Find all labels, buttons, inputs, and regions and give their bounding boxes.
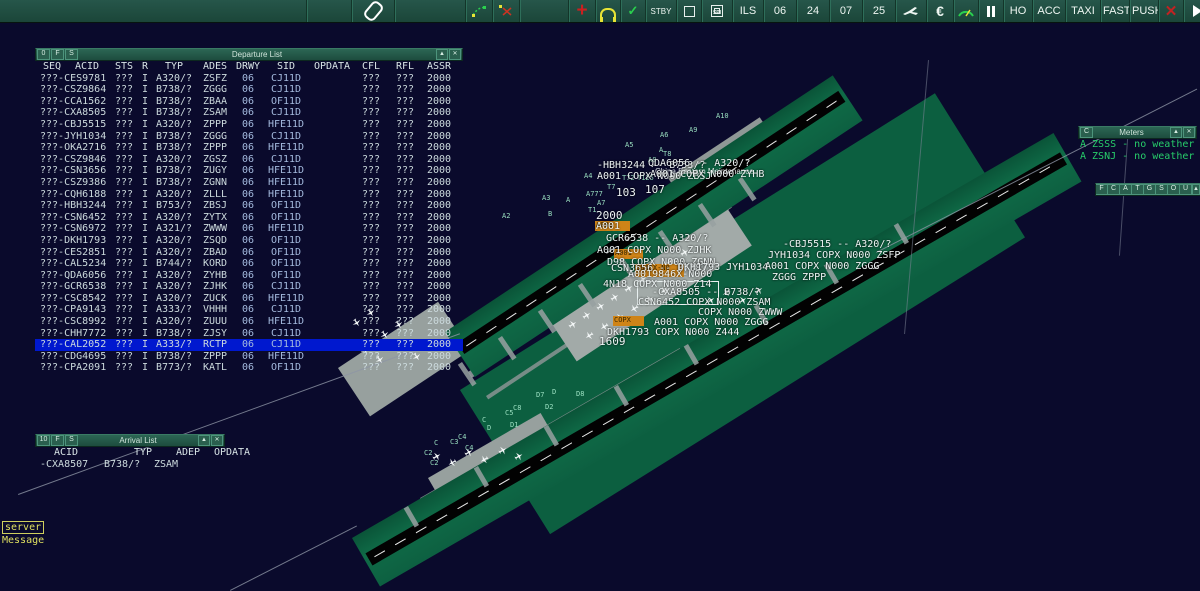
window-button[interactable]: F [51, 435, 64, 446]
departure-row[interactable]: ???-CAL5234???IB744/?KORD06OF11D??????20… [35, 258, 463, 270]
flight-datablock[interactable]: A001 COPX N000 ZYHB [650, 169, 764, 180]
close-button[interactable]: ✕ [211, 435, 223, 446]
departure-row[interactable]: ???-CQH6188???IA320/?ZLLL06HFE11D??????2… [35, 189, 463, 201]
cell: ??? [110, 107, 138, 119]
arrival-list-titlebar[interactable]: 10 F S Arrival List ▲ ✕ [35, 434, 225, 447]
cell: ZUGY [196, 165, 234, 177]
cell: ??? [110, 235, 138, 247]
pause-button[interactable] [978, 0, 1003, 22]
taxiway-label: D [487, 424, 491, 432]
column-header: OPDATA [208, 447, 256, 459]
cell: ???-CBJ5515 [40, 119, 110, 131]
departure-row[interactable]: ???-CSN3656???IB738/?ZUGY06HFE11D??????2… [35, 165, 463, 177]
cell: 06 [234, 235, 262, 247]
cell: ZJHK [196, 281, 234, 293]
cell: B738/? [104, 459, 154, 471]
cell: 2000 [422, 247, 456, 259]
cell: ZUUU [196, 316, 234, 328]
column-header: ADEP [168, 447, 208, 459]
cell: HFE11D [262, 165, 310, 177]
cell: VHHH [196, 304, 234, 316]
cell: ZPPP [196, 142, 234, 154]
cell: ???-JYH1034 [40, 131, 110, 143]
cell: ??? [110, 142, 138, 154]
cell: B738/? [152, 351, 196, 363]
cell: KORD [196, 258, 234, 270]
cell: B738/? [152, 328, 196, 340]
stand-number-label: 1609 [599, 335, 626, 348]
message-label[interactable]: Message [2, 535, 44, 546]
cell: ??? [354, 293, 388, 305]
taxiway-label: A [566, 196, 570, 204]
runway-07-button[interactable]: 07 [829, 0, 862, 22]
filter-button-c[interactable]: C [1108, 184, 1120, 195]
flight-datablock[interactable]: GCR6538 -- A320/? [606, 233, 708, 244]
minimize-button[interactable]: ▲ [1170, 127, 1182, 138]
cell: ZSQD [196, 235, 234, 247]
departure-row[interactable]: ???-CPA2091???IB773/?KATL06OF11D??????20… [35, 362, 463, 374]
cell: I [138, 131, 152, 143]
aircraft-view-button[interactable] [895, 0, 926, 22]
cell: ???-GCR6538 [40, 281, 110, 293]
cell: OF11D [262, 247, 310, 259]
acc-button[interactable]: ACC [1032, 0, 1065, 22]
flight-datablock[interactable]: -CBJ5515 -- A320/? [783, 239, 891, 250]
window-title: Departure List [78, 50, 436, 59]
flight-datablock[interactable]: A001 [596, 221, 620, 232]
cell: I [138, 362, 152, 374]
cell: ZGNN [196, 177, 234, 189]
cell: ??? [388, 270, 422, 282]
cell: ??? [354, 131, 388, 143]
cell: ??? [354, 142, 388, 154]
stand-number-label: 2000 [596, 209, 623, 222]
arrival-list-window: 10 F S Arrival List ▲ ✕ ACIDTYPADEPOPDAT… [35, 434, 225, 470]
cell: HFE11D [262, 316, 310, 328]
stby-button[interactable]: STBY [645, 0, 676, 22]
departure-list-header: SEQACIDSTSRTYPADESDRWYSIDOPDATACFLRFLASS… [35, 61, 463, 73]
cell: HFE11D [262, 189, 310, 201]
filter-button-s[interactable]: S [1156, 184, 1168, 195]
taxiway-label: C [482, 416, 486, 424]
runway-25-button[interactable]: 25 [862, 0, 895, 22]
cell: I [138, 235, 152, 247]
cell: OF11D [262, 235, 310, 247]
cell: HFE11D [262, 177, 310, 189]
taxiway-label: A7 [597, 199, 605, 207]
departure-row[interactable]: ???-CCA1562???IB738/?ZBAA06OF11D??????20… [35, 96, 463, 108]
cell: OF11D [262, 200, 310, 212]
cell: ??? [110, 177, 138, 189]
cell: ???-CPA9143 [40, 304, 110, 316]
cell: 06 [234, 304, 262, 316]
cell: 06 [234, 223, 262, 235]
cell: ??? [388, 154, 422, 166]
spi-button[interactable]: SPI [701, 0, 732, 22]
cell: ??? [388, 362, 422, 374]
column-header: TYP [118, 447, 168, 459]
cell: I [138, 189, 152, 201]
cell: ZGSZ [196, 154, 234, 166]
cell: ??? [354, 281, 388, 293]
filter-button-o[interactable]: O [1168, 184, 1180, 195]
taxiway-label: D7 [536, 391, 544, 399]
cell: ZYTX [196, 212, 234, 224]
flight-datablock[interactable]: DKH1793 JYH1034 [678, 262, 768, 273]
cell: ???-CSZ9864 [40, 84, 110, 96]
cell: 06 [234, 165, 262, 177]
taxiway-label: A4 [584, 172, 592, 180]
cell: 06 [234, 328, 262, 340]
cell: ZPPP [196, 119, 234, 131]
cell: ??? [388, 131, 422, 143]
filter-button-f[interactable]: F [1096, 184, 1108, 195]
pencil-tool-button[interactable] [351, 0, 394, 22]
taxiway-label: D8 [576, 390, 584, 398]
cell: ??? [354, 96, 388, 108]
taxiway-label: A9 [689, 126, 697, 134]
spi-icon: SPI [711, 5, 723, 17]
window-button[interactable]: S [65, 49, 78, 60]
add-flight-button[interactable]: + [568, 0, 595, 22]
flight-datablock[interactable]: A001 COPX N000 ZJHK [597, 245, 711, 256]
cell: ???-CAL5234 [40, 258, 110, 270]
stand-number-label: 103 [616, 186, 636, 199]
cancel-button[interactable]: ✕ [1158, 0, 1183, 22]
gauge-icon [957, 5, 975, 18]
cell: ZSAM [196, 107, 234, 119]
cell: ??? [110, 84, 138, 96]
cell: 2000 [422, 212, 456, 224]
departure-row[interactable]: ???-CSN6972???IA321/?ZWWW06HFE11D??????2… [35, 223, 463, 235]
cell: 06 [234, 247, 262, 259]
cell: ??? [388, 142, 422, 154]
route-draw-button[interactable] [465, 0, 492, 22]
cell: ??? [354, 328, 388, 340]
cell: I [138, 96, 152, 108]
cell: CJ11D [262, 281, 310, 293]
cell: OF11D [262, 362, 310, 374]
departure-row[interactable]: ???-CBJ5515???IA320/?ZPPP06HFE11D??????2… [35, 119, 463, 131]
cell: 06 [234, 339, 262, 351]
cell: ???-CES2851 [40, 247, 110, 259]
cell: ??? [388, 281, 422, 293]
cell: ??? [388, 339, 422, 351]
cell: ???-CCA1562 [40, 96, 110, 108]
taxiway-label: T8 [663, 150, 671, 158]
window-button[interactable]: S [65, 435, 78, 446]
cell: I [138, 270, 152, 282]
column-header: OPDATA [310, 61, 354, 73]
window-button[interactable]: C [1080, 127, 1093, 138]
departure-row[interactable]: ???-CDG4695???IB738/?ZPPP06HFE11D??????2… [35, 351, 463, 363]
cell: ??? [354, 223, 388, 235]
cell: I [138, 223, 152, 235]
departure-list-titlebar[interactable]: 0 F S Departure List ▲ ✕ [35, 48, 463, 61]
departure-row[interactable]: ???-DKH1793???IA320/?ZSQD06OF11D??????20… [35, 235, 463, 247]
cell: ??? [388, 165, 422, 177]
cell: I [138, 351, 152, 363]
headset-button[interactable] [595, 0, 620, 22]
close-button[interactable]: ✕ [1183, 127, 1195, 138]
filter-button-u[interactable]: U [1180, 184, 1192, 195]
filter-button-t[interactable]: T [1132, 184, 1144, 195]
runway-24-button[interactable]: 24 [796, 0, 829, 22]
cell: I [138, 281, 152, 293]
departure-row[interactable]: ???-CSZ9846???IA320/?ZGSZ06CJ11D??????20… [35, 154, 463, 166]
window-title: Arrival List [78, 436, 198, 445]
toolbar-spacer [306, 0, 351, 22]
cell: I [138, 316, 152, 328]
taxiway-label: B [548, 210, 552, 218]
cell: I [138, 304, 152, 316]
cell: ??? [354, 154, 388, 166]
cell: 2000 [422, 84, 456, 96]
minimize-button[interactable]: ▲ [1192, 184, 1200, 195]
cell: 06 [234, 316, 262, 328]
arrival-list-rows: -CXA8507B738/?ZSAM [35, 459, 225, 471]
filter-button-g[interactable]: G [1144, 184, 1156, 195]
cell: ???-CDG4695 [40, 351, 110, 363]
ho-button[interactable]: HO [1003, 0, 1032, 22]
cell: ??? [354, 270, 388, 282]
taxiway-label: D2 [545, 403, 553, 411]
cell: 2000 [422, 258, 456, 270]
play-button[interactable] [1183, 0, 1200, 22]
column-header: R [138, 61, 152, 73]
departure-row[interactable]: ???-CSZ9864???IB738/?ZGGG06CJ11D??????20… [35, 84, 463, 96]
window-button[interactable]: 10 [37, 435, 50, 446]
taxi-button[interactable]: TAXI [1065, 0, 1100, 22]
cell: ??? [110, 96, 138, 108]
departure-row[interactable]: ???-JYH1034???IB738/?ZGGG06CJ11D??????20… [35, 131, 463, 143]
cell: ??? [388, 189, 422, 201]
cell: 2000 [422, 328, 456, 340]
column-header: SEQ [40, 61, 64, 73]
meters-titlebar[interactable]: C Meters ▲ ✕ [1078, 126, 1197, 139]
cell: HFE11D [262, 142, 310, 154]
cell: ??? [388, 119, 422, 131]
squawk-box-button[interactable] [676, 0, 701, 22]
flight-datablock[interactable]: JYH1034 COPX N000 ZSFP [768, 250, 900, 261]
cell: 06 [234, 362, 262, 374]
filter-button-a[interactable]: A [1120, 184, 1132, 195]
cell: 2000 [422, 119, 456, 131]
cell: ZBAD [196, 247, 234, 259]
departure-row[interactable]: ???-CSZ9386???IB738/?ZGNN06HFE11D??????2… [35, 177, 463, 189]
cell: CJ11D [262, 328, 310, 340]
cell: ??? [388, 328, 422, 340]
flight-datablock[interactable]: QDA6056 -- A320/? [648, 158, 750, 169]
cell: ??? [354, 189, 388, 201]
cell: ??? [110, 351, 138, 363]
check-icon: ✓ [628, 3, 639, 19]
cell: ??? [354, 200, 388, 212]
arrival-row[interactable]: -CXA8507B738/?ZSAM [35, 459, 225, 471]
cell: ??? [388, 258, 422, 270]
server-status[interactable]: server [2, 521, 44, 534]
cell: 06 [234, 131, 262, 143]
cell: B738/? [152, 96, 196, 108]
cell: 2000 [422, 316, 456, 328]
cell: 06 [234, 212, 262, 224]
metar-line: A ZSSS - no weather [1078, 139, 1197, 151]
cell: I [138, 247, 152, 259]
cell: ??? [388, 107, 422, 119]
meters-window: C Meters ▲ ✕ A ZSSS - no weatherA ZSNJ -… [1078, 126, 1197, 163]
cell: ???-CSC8542 [40, 293, 110, 305]
flight-datablock[interactable]: ZGGG ZPPP [772, 272, 826, 283]
taxiway-label: C4 [458, 433, 466, 441]
cell: 2000 [422, 304, 456, 316]
play-icon [1193, 5, 1200, 17]
metar-line: A ZSNJ - no weather [1078, 151, 1197, 163]
departure-row[interactable]: ???-GCR6538???IA320/?ZJHK06CJ11D??????20… [35, 281, 463, 293]
departure-row[interactable]: ???-CAL2052???IA333/?RCTP06CJ11D??????20… [35, 339, 463, 351]
cell: ??? [354, 316, 388, 328]
metar-lines: A ZSSS - no weatherA ZSNJ - no weather [1078, 139, 1197, 163]
hook-button[interactable]: € [926, 0, 953, 22]
departure-row[interactable]: ???-CES2851???IA320/?ZBAD06OF11D??????20… [35, 247, 463, 259]
departure-list-rows: ???-CES9781???IA320/?ZSFZ06CJ11D??????20… [35, 73, 463, 374]
cell: RCTP [196, 339, 234, 351]
cell: A320/? [152, 293, 196, 305]
cell: ??? [354, 165, 388, 177]
cell: A320/? [152, 270, 196, 282]
headset-icon [600, 8, 616, 19]
cell: 06 [234, 200, 262, 212]
window-button[interactable]: 0 [37, 49, 50, 60]
cell: ??? [388, 293, 422, 305]
cell: I [138, 200, 152, 212]
cell: ??? [388, 212, 422, 224]
cell: ??? [110, 316, 138, 328]
cell: 2000 [422, 223, 456, 235]
cell: A320/? [152, 119, 196, 131]
column-header: SID [262, 61, 310, 73]
cell: ??? [388, 316, 422, 328]
cell: A333/? [152, 304, 196, 316]
cell: 2000 [422, 165, 456, 177]
cell: B738/? [152, 142, 196, 154]
cell: ???-CSN3656 [40, 165, 110, 177]
cell: 06 [234, 107, 262, 119]
cell: HFE11D [262, 223, 310, 235]
plus-icon: + [576, 6, 587, 16]
cell: 2000 [422, 362, 456, 374]
cell: CJ11D [262, 339, 310, 351]
departure-row[interactable]: ???-CHH7772???IB738/?ZJSY06CJ11D??????20… [35, 328, 463, 340]
taxiway-label: A10 [716, 112, 729, 120]
cell: A320/? [152, 189, 196, 201]
stand-number-label: 107 [645, 183, 665, 196]
cell: 2000 [422, 131, 456, 143]
minimize-button[interactable]: ▲ [436, 49, 448, 60]
gauge-button[interactable] [953, 0, 978, 22]
cell: I [138, 154, 152, 166]
cell: ??? [354, 235, 388, 247]
minimize-button[interactable]: ▲ [198, 435, 210, 446]
departure-row[interactable]: ???-CSC8992???IA320/?ZUUU06HFE11D??????2… [35, 316, 463, 328]
cell: I [138, 212, 152, 224]
cell: OF11D [262, 96, 310, 108]
red-x-icon: ✕ [1165, 2, 1178, 20]
cell: ??? [110, 339, 138, 351]
pause-icon [992, 6, 995, 17]
departure-row[interactable]: ???-OKA2716???IB738/?ZPPP06HFE11D??????2… [35, 142, 463, 154]
cell: ??? [388, 304, 422, 316]
cell: B753/? [152, 200, 196, 212]
fast-button[interactable]: FAST [1100, 0, 1129, 22]
flight-datablock[interactable]: DKH1793 COPX N000 Z444 [607, 327, 739, 338]
departure-row[interactable]: ???-CSC8542???IA320/?ZUCK06HFE11D??????2… [35, 293, 463, 305]
extended-centerline [230, 526, 357, 591]
departure-row[interactable]: ???-CSN6452???IA320/?ZYTX06OF11D??????20… [35, 212, 463, 224]
route-delete-button[interactable] [492, 0, 519, 22]
cell: ??? [388, 177, 422, 189]
cell: ??? [388, 235, 422, 247]
cell: 06 [234, 96, 262, 108]
cell: CJ11D [262, 107, 310, 119]
cell: ???-CSN6972 [40, 223, 110, 235]
cell: ??? [110, 73, 138, 85]
cell: 06 [234, 84, 262, 96]
taxiway-label: C [434, 439, 438, 447]
arrival-list-header: ACIDTYPADEPOPDATA [35, 447, 225, 459]
cell: KATL [196, 362, 234, 374]
taxiway-label: C4 [465, 444, 473, 452]
push-button[interactable]: PUSH [1129, 0, 1158, 22]
flight-datablock[interactable]: A001 COPX N000 ZGGG [765, 261, 879, 272]
amber-alert-chip[interactable]: COPX [613, 316, 644, 326]
cell: 06 [234, 73, 262, 85]
cell: 2000 [422, 235, 456, 247]
square-icon [684, 6, 695, 17]
cell: HFE11D [262, 119, 310, 131]
pause-icon [987, 6, 990, 17]
cell: ??? [354, 84, 388, 96]
departure-row[interactable]: ???-CES9781???IA320/?ZSFZ06CJ11D??????20… [35, 73, 463, 85]
cell: ??? [110, 223, 138, 235]
cell: ZJSY [196, 328, 234, 340]
cell: ??? [110, 165, 138, 177]
cell: I [138, 177, 152, 189]
column-header: ASSR [422, 61, 456, 73]
cell: ??? [354, 212, 388, 224]
cell: I [138, 339, 152, 351]
cell: A320/? [152, 247, 196, 259]
departure-row[interactable]: ???-CXA8505???IB738/?ZSAM06CJ11D??????20… [35, 107, 463, 119]
cell: ???-CAL2052 [40, 339, 110, 351]
taxiway-label: T7 [607, 183, 615, 191]
runway-06-button[interactable]: 06 [763, 0, 796, 22]
ils-button[interactable]: ILS [732, 0, 763, 22]
departure-row[interactable]: ???-HBH3244???IB753/?ZBSJ06OF11D??????20… [35, 200, 463, 212]
cell: ??? [388, 84, 422, 96]
departure-row[interactable]: ???-QDA6056???IA320/?ZYHB06OF11D??????20… [35, 270, 463, 282]
close-button[interactable]: ✕ [449, 49, 461, 60]
cell: A321/? [152, 223, 196, 235]
cell: ??? [354, 362, 388, 374]
window-button[interactable]: F [51, 49, 64, 60]
departure-row[interactable]: ???-CPA9143???IA333/?VHHH06CJ11D??????20… [35, 304, 463, 316]
toolbar-spacer [394, 0, 465, 22]
cell: 2000 [422, 293, 456, 305]
confirm-button[interactable]: ✓ [620, 0, 645, 22]
cell: ???-CQH6188 [40, 189, 110, 201]
cell: B738/? [152, 131, 196, 143]
column-header: DRWY [234, 61, 262, 73]
